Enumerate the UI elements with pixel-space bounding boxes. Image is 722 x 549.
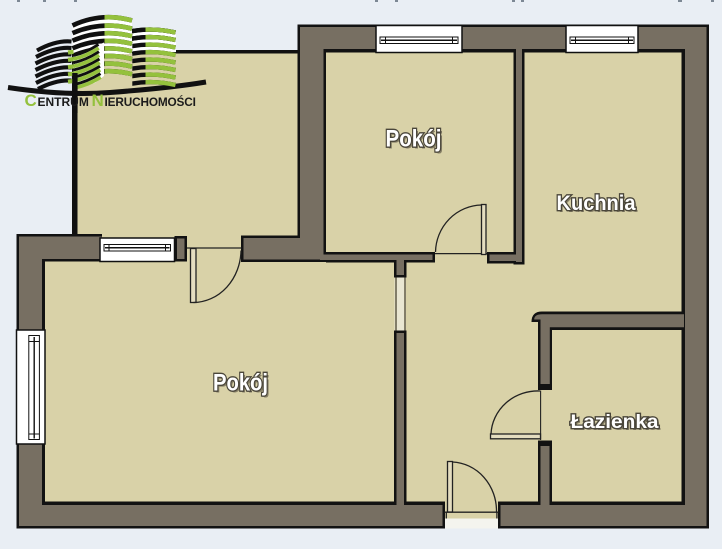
svg-text:IERUCHOMOŚCI: IERUCHOMOŚCI: [105, 95, 196, 109]
svg-text:Pokój: Pokój: [213, 370, 268, 397]
svg-text:N: N: [92, 91, 104, 110]
svg-text:ENTRUM: ENTRUM: [38, 95, 89, 109]
svg-text:Łazienka: Łazienka: [571, 411, 659, 433]
svg-text:Kuchnia: Kuchnia: [557, 191, 637, 215]
svg-text:C: C: [25, 91, 37, 110]
svg-text:Pokój: Pokój: [386, 126, 442, 153]
